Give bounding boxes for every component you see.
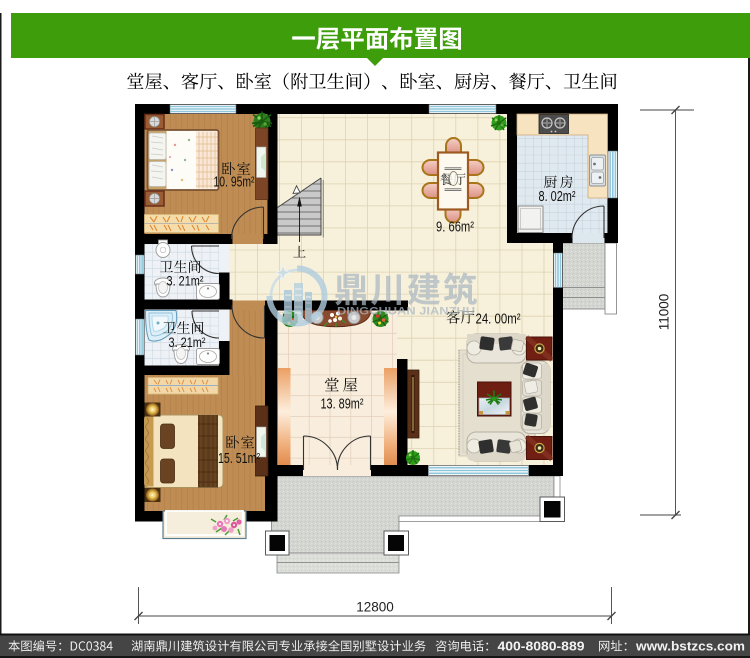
svg-text:9. 66m²: 9. 66m² xyxy=(436,220,474,236)
svg-text:12800: 12800 xyxy=(356,600,394,615)
svg-text:8. 02m²: 8. 02m² xyxy=(539,189,576,205)
svg-text:13. 89m²: 13. 89m² xyxy=(321,397,364,413)
svg-text:15. 51m²: 15. 51m² xyxy=(218,451,260,467)
svg-text:24. 00m²: 24. 00m² xyxy=(476,312,521,328)
svg-text:400-8080-889: 400-8080-889 xyxy=(498,640,585,654)
svg-text:11000: 11000 xyxy=(657,294,672,331)
svg-text:DINGCHUAN JIANZHU: DINGCHUAN JIANZHU xyxy=(337,306,475,318)
svg-text:3. 21m²: 3. 21m² xyxy=(169,334,206,350)
svg-text:10. 95m²: 10. 95m² xyxy=(214,175,255,191)
svg-text:www.bstzcs.com: www.bstzcs.com xyxy=(635,640,745,654)
svg-text:3. 21m²: 3. 21m² xyxy=(167,273,204,289)
